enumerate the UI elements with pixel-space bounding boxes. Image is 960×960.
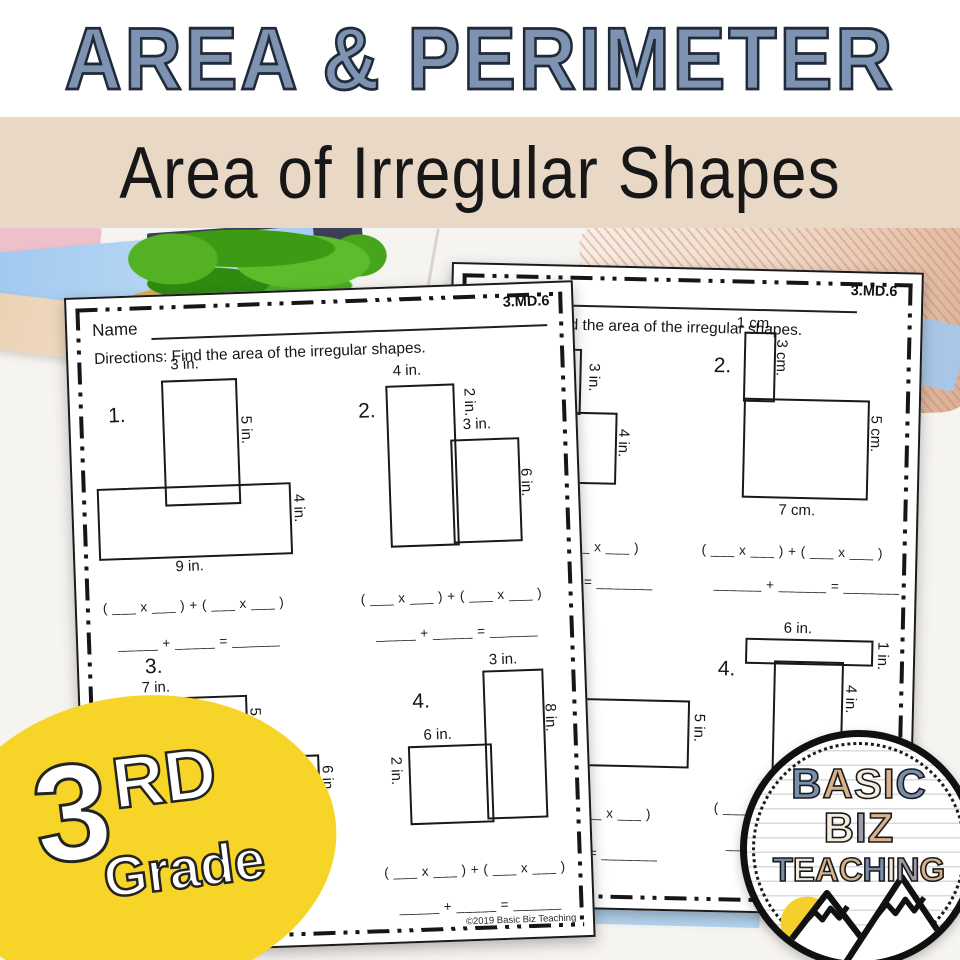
equation-products: ( ___ x ___ ) + ( ___ x ___ ) [103,595,285,616]
subtitle-banner: Area of Irregular Shapes [0,117,960,228]
dimension-label: 1 in. [874,642,892,671]
grade-suffix: RD [108,736,220,820]
equation-products: ( ___ x ___ ) + ( ___ x ___ ) [701,542,883,561]
title-banner: AREA & PERIMETER [0,0,960,117]
equation-sum: _____ + _____ = ______ [376,622,538,643]
standard-code: 3.MD.6 [502,293,549,311]
dimension-label: 3 in. [489,650,518,668]
standard-code: 3.MD.6 [851,283,898,300]
name-label: Name [92,319,138,341]
page-subtitle: Area of Irregular Shapes [119,130,840,214]
shape-rect [743,332,777,403]
dimension-label: 5 in. [237,415,255,444]
dimension-label: 1 cm. [736,314,773,332]
dimension-label: 2 in. [460,388,478,417]
dimension-label: 3 cm. [772,339,790,376]
problem-number: 4. [412,689,430,714]
dimension-label: 6 in. [784,620,813,638]
dimension-label: 4 in. [392,362,421,380]
dimension-label: 3 in. [170,355,199,373]
problem-number: 2. [713,354,731,378]
equation-sum: _____ + _____ = ______ [399,895,561,916]
problem-number: 1. [108,404,126,429]
problem-number: 4. [718,657,736,681]
dimension-label: 4 in. [842,685,860,714]
shape-rect [97,482,293,561]
equation-sum: ______ + ______ = _______ [714,576,900,595]
dimension-label: 4 in. [290,494,308,523]
dimension-label: 4 in. [615,429,633,458]
logo-word-basic: BASIC [747,763,960,805]
dimension-label: 6 in. [517,468,535,497]
dimension-label: 5 cm. [867,415,885,452]
logo-word-biz: BIZ [747,807,960,849]
dimension-label: 9 in. [175,557,204,575]
problem-number: 3. [145,655,163,680]
dimension-label: 7 cm. [778,501,815,519]
name-line [151,324,547,340]
equation-products: ( ___ x ___ ) + ( ___ x ___ ) [360,585,542,606]
dimension-label: 2 in. [387,756,405,785]
grade-word: Grade [101,831,268,906]
dimension-label: 3 in. [462,415,491,433]
dimension-label: 5 in. [690,714,708,743]
logo-word-teaching: TEACHING [747,853,960,886]
basic-biz-teaching-logo: BASIC BIZ TEACHING [740,730,960,960]
dash-border-top [75,292,562,313]
dimension-label: 6 in. [423,726,452,744]
shape-rect [742,398,870,501]
equation-products: ( ___ x ___ ) + ( ___ x ___ ) [384,859,566,880]
shape-rect [408,743,495,825]
problem-number: 2. [358,399,376,424]
page-title: AREA & PERIMETER [65,7,896,110]
dimension-label: 8 in. [541,703,559,732]
equation-sum: _____ + _____ = ______ [118,632,280,653]
shape-rect [450,437,523,543]
shape-rect [385,383,460,547]
cover-image: 3.MD.6 d the area of the irregular shape… [0,0,960,960]
dimension-label: 7 in. [141,679,170,697]
dimension-label: 3 in. [585,363,603,392]
directions-text: Directions: Find the area of the irregul… [94,339,426,369]
